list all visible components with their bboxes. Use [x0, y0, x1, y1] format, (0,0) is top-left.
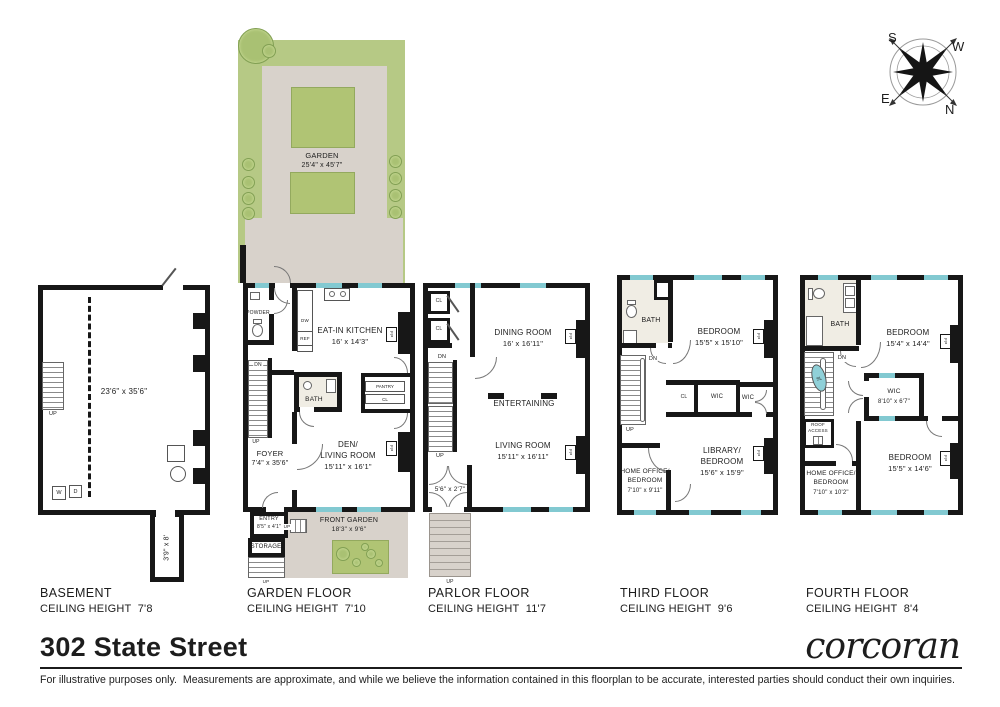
chimney [950, 325, 963, 363]
window [924, 510, 948, 515]
garden-dims: 25'4" x 45'7" [302, 161, 343, 170]
staircase [428, 362, 453, 404]
storage-label: STORAGE [251, 543, 282, 551]
extension-dims: 3'9" x 8' [162, 535, 171, 561]
basement-room-dims: 23'6" x 35'6" [101, 387, 147, 398]
powder-room-label: POWDER [246, 310, 270, 317]
wall-segment [470, 283, 475, 357]
bedroom-label: BEDROOM [887, 328, 930, 339]
wic-dims: 8'10" x 6'7" [878, 398, 910, 406]
compass-north-label: N [945, 102, 954, 117]
bedroom-label: BEDROOM [698, 327, 741, 338]
shrub-icon [389, 155, 402, 168]
shower [326, 379, 336, 393]
compass-west-label: W [952, 39, 964, 54]
shrub-icon [375, 559, 383, 567]
refrigerator-label: REF [300, 336, 310, 342]
utility-box [167, 445, 185, 462]
door-gap [156, 509, 175, 517]
floor-title-parlor: PARLOR FLOOR CEILING HEIGHT 11'7 [428, 586, 546, 615]
fireplace: FP [386, 327, 397, 342]
stairs-up-label: UP [252, 439, 259, 446]
garden-lawn-upper [291, 87, 355, 148]
shrub-icon [389, 206, 402, 219]
window [634, 510, 656, 515]
front-garden-label: FRONT GARDEN [320, 516, 378, 525]
library-dims: 15'6" x 15'9" [700, 468, 744, 478]
living-room-dims: 15'11" x 16'11" [497, 452, 548, 462]
door-gap [864, 381, 869, 397]
stair-rail [640, 358, 645, 422]
door-gap [163, 285, 183, 290]
dining-room-dims: 16' x 16'11" [503, 339, 543, 349]
chimney [950, 443, 963, 479]
bath-label: BATH [305, 396, 323, 405]
library-label: LIBRARY/ BEDROOM [701, 446, 744, 468]
window [520, 283, 546, 288]
garden-label: GARDEN [305, 151, 338, 161]
ceiling-height: CEILING HEIGHT 7'10 [247, 603, 366, 615]
stairs-up-label: UP [263, 579, 270, 585]
wall-segment [740, 382, 778, 387]
stairs-down-label: DN [837, 355, 847, 362]
wall-segment [453, 360, 457, 452]
page-title: 302 State Street [40, 632, 247, 663]
door-gap [432, 507, 464, 512]
entertaining-label: ENTERTAINING [493, 399, 554, 410]
floor-title-garden: GARDEN FLOOR CEILING HEIGHT 7'10 [247, 586, 366, 615]
window [924, 275, 948, 280]
window [741, 275, 765, 280]
window [358, 283, 382, 288]
bath-label: BATH [642, 316, 661, 325]
shrub-icon [352, 558, 361, 567]
chimney [576, 320, 590, 358]
dishwasher-label: DW [301, 318, 309, 324]
fireplace: FP [753, 329, 764, 344]
wall-segment [668, 275, 673, 342]
home-office-dims: 7'10" x 9'11" [627, 487, 662, 495]
kitchen-label: EAT-IN KITCHEN [317, 326, 382, 337]
window [818, 510, 842, 515]
bedroom-dims: 15'5" x 15'10" [695, 338, 743, 348]
ladder-icon [813, 436, 823, 445]
wall-segment [919, 373, 924, 421]
garden-lawn-lower [290, 172, 355, 214]
fireplace: FP [565, 329, 576, 344]
toilet [626, 305, 637, 318]
stairs-down-label: DN [253, 362, 263, 369]
front-garden-dims: 18'3" x 9'6" [332, 526, 366, 535]
compass-south-label: S [888, 30, 897, 45]
dashed-partition [88, 297, 91, 497]
floor-title-third: THIRD FLOOR CEILING HEIGHT 9'6 [620, 586, 733, 615]
pantry-label: PANTRY [365, 381, 405, 392]
wall-segment [666, 380, 736, 385]
stove [324, 288, 350, 301]
wall-segment [361, 373, 410, 377]
staircase [290, 519, 307, 533]
corcoran-logo: corcoran [805, 626, 960, 667]
floorplan-sheet: S W E N GARDEN 25'4" x 45'7" UP 23'6" x … [0, 0, 1000, 707]
compass-east-label: E [881, 91, 890, 106]
sink [250, 292, 260, 300]
shrub-icon [366, 549, 376, 559]
boiler-tank [170, 466, 186, 482]
washer: W [52, 486, 66, 500]
wall-segment [428, 343, 452, 348]
den-dims: 15'11" x 16'1" [324, 462, 372, 472]
chimney [764, 320, 778, 358]
window [694, 275, 722, 280]
stairs-up-label: UP [436, 453, 444, 460]
staircase [42, 362, 64, 410]
floor-name: THIRD FLOOR [620, 586, 733, 600]
sink [845, 286, 855, 296]
toilet [252, 324, 263, 337]
home-office-label: HOME OFFICE/ BEDROOM [620, 468, 669, 486]
window [871, 510, 897, 515]
window [549, 507, 573, 512]
wall-segment [856, 275, 861, 345]
den-label: DEN/ LIVING ROOM [320, 440, 376, 462]
toilet [813, 288, 825, 299]
foyer-label: FOYER [257, 449, 284, 459]
sink [845, 298, 855, 308]
bedroom-dims: 15'4" x 14'4" [886, 339, 930, 349]
wall-segment [193, 313, 205, 329]
chimney [398, 312, 410, 354]
dining-room-label: DINING ROOM [494, 328, 551, 339]
roof-access-label: ROOF ACCESS [808, 422, 828, 434]
compass-star-icon [858, 12, 990, 127]
shrub-icon [242, 158, 255, 171]
shrub-icon [242, 192, 255, 205]
ceiling-height: CEILING HEIGHT 8'4 [806, 603, 919, 615]
ceiling-height: CEILING HEIGHT 9'6 [620, 603, 733, 615]
living-room-label: LIVING ROOM [495, 441, 551, 452]
fireplace: FP [940, 334, 951, 349]
stairs-up-label: UP [446, 579, 453, 586]
shrub-icon [389, 172, 402, 185]
wall-segment [666, 412, 736, 417]
tree-icon [262, 44, 276, 58]
stairs-up-label: UP [625, 427, 635, 434]
staircase [248, 557, 285, 578]
floor-name: BASEMENT [40, 586, 153, 600]
staircase [428, 406, 453, 452]
window [879, 373, 895, 378]
chimney [576, 436, 590, 474]
window [455, 283, 481, 288]
closet-label: CL [681, 394, 688, 401]
bedroom-dims: 15'5" x 14'6" [888, 464, 932, 474]
floor-name: GARDEN FLOOR [247, 586, 366, 600]
foyer-dims: 7'4" x 35'6" [252, 459, 289, 468]
window [255, 283, 269, 288]
wall-segment [292, 412, 297, 444]
wall-segment [193, 468, 205, 484]
bath-label: BATH [831, 320, 850, 329]
fireplace: FP [565, 445, 576, 460]
stairs-down-label: DN [438, 354, 446, 361]
fireplace: FP [753, 446, 764, 461]
shrub-icon [361, 543, 369, 551]
floor-title-basement: BASEMENT CEILING HEIGHT 7'8 [40, 586, 153, 615]
bedroom-label: BEDROOM [889, 453, 932, 464]
fireplace: FP [386, 441, 397, 456]
wall-segment [240, 245, 246, 283]
door-gap [836, 461, 852, 466]
floor-title-fourth: FOURTH FLOOR CEILING HEIGHT 8'4 [806, 586, 919, 615]
door-leaf [161, 268, 176, 287]
window [689, 510, 711, 515]
wall-segment [268, 358, 272, 438]
stairs-down-label: DN [648, 356, 658, 363]
burner-icon [329, 291, 335, 297]
divider [40, 667, 962, 669]
home-office-label: HOME OFFICE/ BEDROOM [806, 470, 855, 488]
disclaimer-text: For illustrative purposes only. Measurem… [40, 674, 964, 686]
wall-segment [361, 373, 365, 413]
closet-label: CL [436, 326, 443, 333]
wall-segment [246, 340, 274, 345]
stoop-stairs [429, 513, 471, 577]
wall-segment [694, 385, 698, 412]
shrub-icon [242, 176, 255, 189]
sink [303, 381, 312, 390]
window [741, 510, 761, 515]
burner-icon [340, 291, 346, 297]
ceiling-height: CEILING HEIGHT 11'7 [428, 603, 546, 615]
wic-label: WIC [711, 393, 723, 401]
wall-segment [193, 355, 205, 372]
stairs-up-label: UP [283, 524, 292, 530]
stairs-up-label: UP [49, 411, 57, 418]
window [503, 507, 531, 512]
entry-label: ENTRY [259, 516, 279, 523]
wic-label: WIC [887, 388, 900, 397]
wall-segment [292, 490, 297, 512]
wic-label: WIC [741, 394, 755, 402]
home-office-dims: 7'10" x 10'2" [813, 489, 849, 497]
fireplace: FP [940, 451, 951, 466]
dryer: D [69, 485, 82, 498]
wall-segment [467, 465, 472, 512]
closet-label: CL [436, 298, 443, 305]
shower [806, 316, 823, 346]
window [871, 275, 897, 280]
entry-dims: 8'5" x 4'1" [257, 524, 281, 531]
shrub-icon [336, 547, 350, 561]
kitchen-dims: 16' x 14'3" [332, 337, 369, 347]
floor-name: PARLOR FLOOR [428, 586, 546, 600]
shrub-icon [389, 189, 402, 202]
garden-patio-lower [245, 218, 403, 283]
staircase [248, 360, 268, 438]
wall-segment [193, 430, 205, 446]
chimney [398, 432, 410, 472]
ceiling-height: CEILING HEIGHT 7'8 [40, 603, 153, 615]
wall-segment [856, 421, 861, 511]
shrub-icon [242, 207, 255, 220]
window [879, 416, 895, 421]
sink [623, 330, 637, 344]
closet-label: CL [365, 394, 405, 404]
chimney [764, 438, 778, 474]
compass-rose: S W E N [858, 12, 990, 127]
floor-name: FOURTH FLOOR [806, 586, 919, 600]
